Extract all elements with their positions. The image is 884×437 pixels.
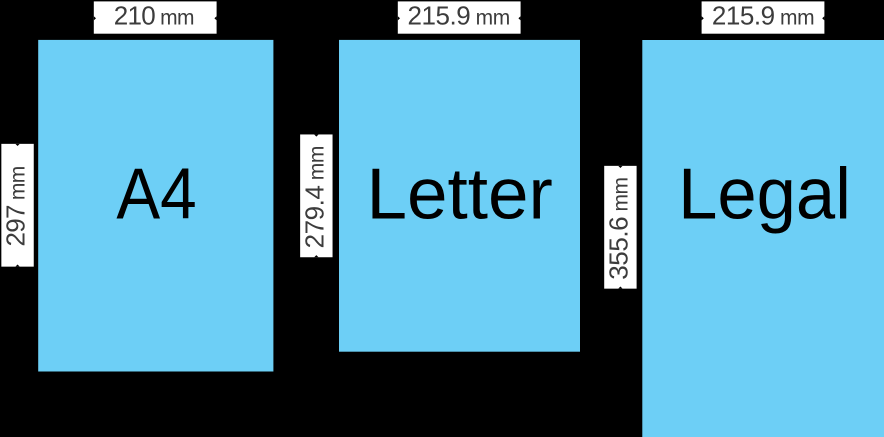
svg-text:Letter: Letter	[366, 154, 552, 235]
svg-text:A4: A4	[116, 154, 196, 234]
svg-text:Legal: Legal	[678, 154, 851, 235]
